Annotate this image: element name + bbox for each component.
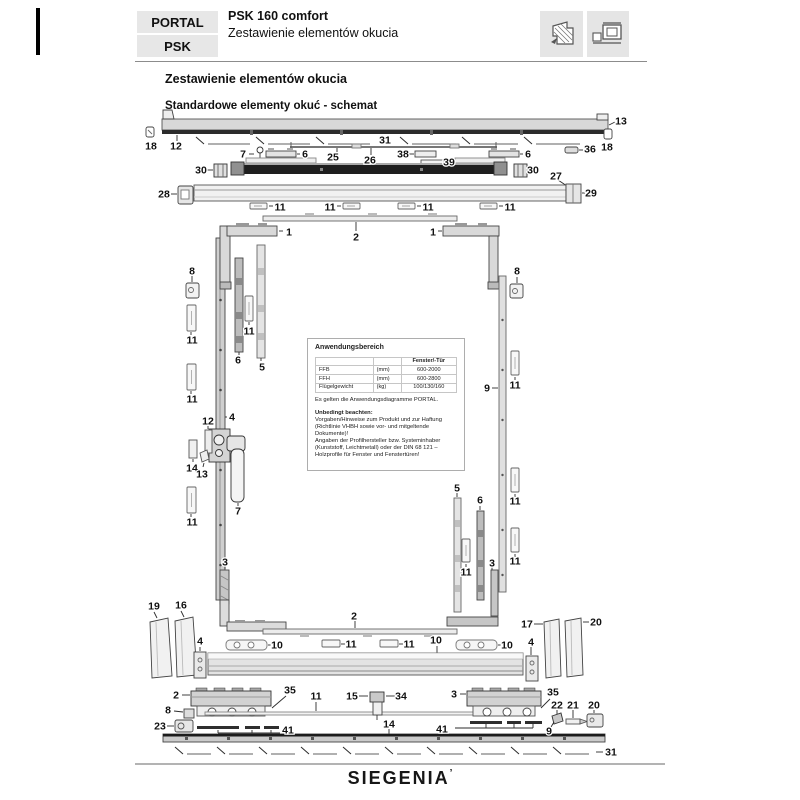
part-label-11: 11 <box>186 394 197 406</box>
part-label-2: 2 <box>353 232 359 244</box>
part-shape <box>197 726 239 729</box>
part-label-3: 3 <box>489 558 495 570</box>
part-shape <box>269 737 272 740</box>
warning-title: Unbedingt beachten: <box>315 410 457 417</box>
end-clip <box>604 129 612 139</box>
part-shape <box>340 130 343 135</box>
part-label-10: 10 <box>430 635 442 647</box>
part-label-41: 41 <box>436 724 448 736</box>
roller-carriage <box>191 691 271 706</box>
part-label-22: 22 <box>551 700 563 712</box>
part-label-12: 12 <box>170 141 182 153</box>
glide-block <box>456 640 497 650</box>
corner-drive <box>443 226 499 236</box>
part-shape <box>488 282 499 289</box>
part-shape <box>236 223 249 227</box>
part-label-17: 17 <box>521 619 533 631</box>
header-cell-fenster-tuer: Fenster/-Tür <box>401 357 456 366</box>
leader-line <box>609 122 615 125</box>
clamp <box>370 692 384 702</box>
leader-line <box>174 711 183 712</box>
part-shape <box>587 714 603 727</box>
hatch-tick <box>400 137 408 144</box>
part-shape <box>455 555 460 562</box>
part-shape <box>501 529 503 531</box>
part-label-13: 13 <box>196 469 208 481</box>
hatch-tick <box>316 137 324 144</box>
part-shape <box>510 148 516 151</box>
part-label-35: 35 <box>284 685 296 697</box>
part-label-11: 11 <box>345 639 356 651</box>
part-shape <box>287 148 293 151</box>
hatch-tick <box>427 747 435 754</box>
part-label-26: 26 <box>364 155 376 167</box>
part-label-11: 11 <box>243 326 254 338</box>
part-shape <box>501 319 503 321</box>
part-shape <box>185 737 188 740</box>
glide-block <box>226 640 267 650</box>
part-label-10: 10 <box>501 640 513 652</box>
part-shape <box>181 190 189 199</box>
hatch-tick <box>256 137 264 144</box>
cover-cap <box>544 619 561 678</box>
row-unit: (mm) <box>373 375 401 384</box>
part-shape <box>352 144 361 148</box>
part-shape <box>227 737 230 740</box>
part-label-8: 8 <box>189 266 195 278</box>
part-label-20: 20 <box>588 700 600 712</box>
part-label-11: 11 <box>186 335 197 347</box>
part-label-20: 20 <box>590 617 602 629</box>
running-track <box>194 185 566 201</box>
part-shape <box>219 469 222 472</box>
part-shape <box>566 719 580 724</box>
part-label-11: 11 <box>422 202 433 214</box>
part-label-31: 31 <box>605 747 617 759</box>
catalog-page: PORTAL PSK PSK 160 comfort Zestawienie e… <box>0 0 800 800</box>
hatch-tick <box>511 747 519 754</box>
part-shape <box>219 299 222 302</box>
leader-line <box>541 699 550 708</box>
part-label-28: 28 <box>158 189 170 201</box>
part-shape <box>447 617 498 626</box>
part-shape <box>258 333 264 340</box>
part-label-11: 11 <box>504 202 515 214</box>
part-shape <box>470 721 502 724</box>
part-label-34: 34 <box>395 691 407 703</box>
sash-bottom-rail <box>263 629 457 634</box>
header-cell-empty <box>316 357 374 366</box>
part-shape <box>503 708 511 716</box>
part-shape <box>455 585 460 592</box>
part-label-5: 5 <box>454 483 460 495</box>
part-shape <box>305 213 314 216</box>
application-info-box: Anwendungsbereich Fenster/-Tür FFB (mm) … <box>307 338 465 471</box>
part-shape <box>268 148 274 151</box>
part-shape <box>258 223 267 227</box>
hatch-tick <box>175 747 183 754</box>
locking-bar <box>489 151 519 157</box>
cover-cap <box>150 618 172 678</box>
roller-carriage <box>467 691 541 706</box>
part-shape <box>521 737 524 740</box>
part-label-7: 7 <box>235 506 241 518</box>
part-label-4: 4 <box>528 637 534 649</box>
shim-plate <box>322 640 340 647</box>
part-label-25: 25 <box>327 152 339 164</box>
part-shape <box>478 585 483 592</box>
part-label-9: 9 <box>546 726 552 738</box>
part-shape <box>483 708 491 716</box>
siegenia-logo: SIEGENIA’ <box>0 768 800 789</box>
footer-divider <box>135 763 665 765</box>
part-label-35: 35 <box>547 687 559 699</box>
locking-rail <box>257 245 265 358</box>
part-shape <box>235 620 245 623</box>
part-label-2: 2 <box>173 690 179 702</box>
striker-part <box>510 284 523 298</box>
part-label-5: 5 <box>259 362 265 374</box>
part-shape <box>478 223 487 227</box>
row-value: 600-2000 <box>401 366 456 375</box>
part-label-16: 16 <box>175 600 187 612</box>
track-end-right <box>566 184 581 203</box>
logo-trademark: ’ <box>450 768 453 779</box>
cover-cap <box>565 618 583 677</box>
hatch-tick <box>469 747 477 754</box>
part-shape <box>219 349 222 352</box>
hatch-tick <box>259 747 267 754</box>
part-shape <box>437 737 440 740</box>
part-shape <box>208 653 523 659</box>
top-track-end-cap <box>163 110 174 119</box>
part-shape <box>580 719 587 724</box>
part-label-1: 1 <box>286 227 292 239</box>
part-label-11: 11 <box>403 639 414 651</box>
part-label-30: 30 <box>195 165 207 177</box>
locking-bar <box>266 151 296 157</box>
part-label-3: 3 <box>451 689 457 701</box>
leader-line <box>181 611 184 617</box>
table-row-ffb: FFB (mm) 600-2000 <box>316 366 457 375</box>
top-track <box>162 119 608 130</box>
part-shape <box>219 524 222 527</box>
part-label-19: 19 <box>148 601 160 613</box>
part-shape <box>478 642 484 648</box>
part-shape <box>205 430 212 453</box>
hatch-tick <box>217 747 225 754</box>
part-shape <box>479 737 482 740</box>
part-shape <box>520 130 523 135</box>
part-shape <box>214 435 224 445</box>
row-label: FFH <box>316 375 374 384</box>
hatch-tick <box>385 747 393 754</box>
warning-item: Angaben der Profilhersteller bzw. System… <box>315 438 457 459</box>
part-shape <box>250 130 253 135</box>
part-shape <box>258 305 264 312</box>
part-shape <box>200 450 209 462</box>
part-shape <box>455 520 460 527</box>
part-label-1: 1 <box>430 227 436 239</box>
part-label-11: 11 <box>509 496 520 508</box>
table-row-ffh: FFH (mm) 600-2800 <box>316 375 457 384</box>
part-label-11: 11 <box>274 202 285 214</box>
part-label-6: 6 <box>525 149 531 161</box>
part-shape <box>489 236 498 283</box>
part-shape <box>526 656 538 681</box>
drive-rail-right <box>499 276 506 592</box>
part-shape <box>565 147 578 153</box>
part-shape <box>255 620 265 623</box>
leader-line <box>203 463 204 467</box>
rail-clip <box>214 164 227 177</box>
part-label-11: 11 <box>186 517 197 529</box>
part-shape <box>220 282 231 289</box>
part-shape <box>163 734 605 737</box>
rail-clip <box>514 164 527 177</box>
part-shape <box>415 151 436 157</box>
part-label-10: 10 <box>271 640 283 652</box>
part-label-38: 38 <box>397 149 409 161</box>
part-label-2: 2 <box>351 611 357 623</box>
part-shape <box>236 278 242 285</box>
handle-grip <box>231 449 244 502</box>
part-label-11: 11 <box>509 556 520 568</box>
part-label-30: 30 <box>527 165 539 177</box>
part-shape <box>494 162 507 175</box>
part-label-18: 18 <box>601 142 613 154</box>
part-shape <box>368 213 377 216</box>
part-shape <box>501 369 503 371</box>
part-shape <box>189 440 197 458</box>
part-shape <box>311 737 314 740</box>
part-label-23: 23 <box>154 721 166 733</box>
part-label-9: 9 <box>484 383 490 395</box>
hatch-tick <box>524 137 532 144</box>
part-shape <box>216 450 223 457</box>
striker-part <box>186 283 199 298</box>
part-label-4: 4 <box>229 412 235 424</box>
leader-line <box>154 612 157 618</box>
part-label-8: 8 <box>514 266 520 278</box>
part-shape <box>478 560 483 567</box>
extension-piece <box>220 570 229 604</box>
header-cell-empty <box>373 357 401 366</box>
part-label-41: 41 <box>282 725 294 737</box>
hatch-tick <box>301 747 309 754</box>
part-label-6: 6 <box>302 149 308 161</box>
hatch-tick <box>553 747 561 754</box>
part-shape <box>194 652 206 678</box>
part-shape <box>525 721 542 724</box>
part-shape <box>219 389 222 392</box>
shim-plate <box>380 640 398 647</box>
part-shape <box>245 726 260 729</box>
hatch-tick <box>343 747 351 754</box>
part-label-11: 11 <box>509 380 520 392</box>
part-label-31: 31 <box>379 135 391 147</box>
part-shape <box>234 642 240 648</box>
part-shape <box>395 737 398 740</box>
part-shape <box>363 634 372 637</box>
part-shape <box>455 223 467 227</box>
part-shape <box>248 642 254 648</box>
table-row-fluegelgewicht: Flügelgewicht (kg) 100/130/160 <box>316 383 457 392</box>
warning-item: Vorgaben/Hinweise zum Produkt und zur Ha… <box>315 417 457 438</box>
part-shape <box>501 574 503 576</box>
part-label-18: 18 <box>145 141 157 153</box>
part-label-14: 14 <box>383 719 395 731</box>
row-label: FFB <box>316 366 374 375</box>
part-shape <box>450 144 459 148</box>
part-shape <box>236 336 242 343</box>
part-shape <box>300 634 309 637</box>
leader-line <box>272 696 286 708</box>
part-shape <box>353 737 356 740</box>
part-label-6: 6 <box>235 355 241 367</box>
top-track-band <box>162 130 608 134</box>
part-label-6: 6 <box>477 495 483 507</box>
part-shape <box>501 474 503 476</box>
part-label-8: 8 <box>165 705 171 717</box>
drive-rail-left <box>216 238 225 600</box>
part-shape <box>231 162 244 175</box>
part-shape <box>501 419 503 421</box>
part-shape <box>236 312 242 319</box>
part-label-3: 3 <box>222 557 228 569</box>
part-label-11: 11 <box>460 567 471 579</box>
part-shape <box>227 226 277 236</box>
row-unit: (mm) <box>373 366 401 375</box>
info-box-title: Anwendungsbereich <box>315 344 457 353</box>
row-unit: (kg) <box>373 383 401 392</box>
row-value: 100/130/160 <box>401 383 456 392</box>
part-shape <box>258 268 264 275</box>
part-label-39: 39 <box>443 157 455 169</box>
top-track-end-cap <box>597 114 608 120</box>
part-shape <box>420 168 423 171</box>
sash-top-rail <box>263 216 457 221</box>
part-shape <box>264 726 279 729</box>
part-label-11: 11 <box>310 691 321 703</box>
part-label-36: 36 <box>584 144 596 156</box>
table-header-row: Fenster/-Tür <box>316 357 457 366</box>
part-label-15: 15 <box>346 691 358 703</box>
part-shape <box>464 642 470 648</box>
part-shape <box>478 530 483 537</box>
info-box-note: Es gelten die Anwendungsdiagramme PORTAL… <box>315 397 457 404</box>
part-label-4: 4 <box>197 636 203 648</box>
hanger-part <box>257 147 263 153</box>
part-shape <box>507 721 521 724</box>
part-shape <box>373 702 382 715</box>
part-shape <box>523 708 531 716</box>
part-label-27: 27 <box>550 171 562 183</box>
part-label-29: 29 <box>585 188 597 200</box>
part-label-12: 12 <box>202 416 214 428</box>
row-value: 600-2800 <box>401 375 456 384</box>
part-shape <box>563 737 566 740</box>
part-shape <box>430 130 433 135</box>
part-shape <box>320 168 323 171</box>
part-label-21: 21 <box>567 700 579 712</box>
part-label-11: 11 <box>324 202 335 214</box>
hatch-tick <box>462 137 470 144</box>
part-label-7: 7 <box>240 149 246 161</box>
part-shape <box>184 709 194 718</box>
application-range-table: Fenster/-Tür FFB (mm) 600-2000 FFH (mm) … <box>315 357 457 393</box>
part-label-13: 13 <box>615 116 627 128</box>
logo-text: SIEGENIA <box>348 768 450 788</box>
corner-drive <box>491 570 498 616</box>
row-label: Flügelgewicht <box>316 383 374 392</box>
part-shape <box>491 148 497 151</box>
hatch-tick <box>196 137 204 144</box>
